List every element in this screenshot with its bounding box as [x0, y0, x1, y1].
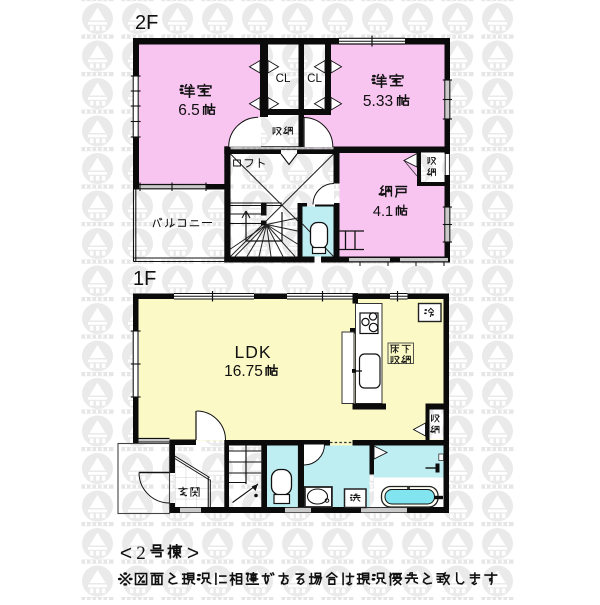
svg-text:LDK: LDK — [234, 342, 271, 362]
svg-text:2F: 2F — [135, 12, 158, 34]
svg-text:2: 2 — [136, 543, 146, 564]
svg-text:<: < — [120, 542, 132, 565]
svg-text:CL: CL — [276, 73, 291, 85]
svg-text:CL: CL — [307, 73, 322, 85]
svg-text:16.75: 16.75 — [224, 363, 263, 380]
svg-text:6.5: 6.5 — [178, 102, 200, 119]
svg-text:5.33: 5.33 — [363, 93, 393, 110]
svg-text:1F: 1F — [133, 268, 156, 290]
svg-text:>: > — [187, 542, 199, 565]
svg-text:4.1: 4.1 — [373, 204, 393, 220]
